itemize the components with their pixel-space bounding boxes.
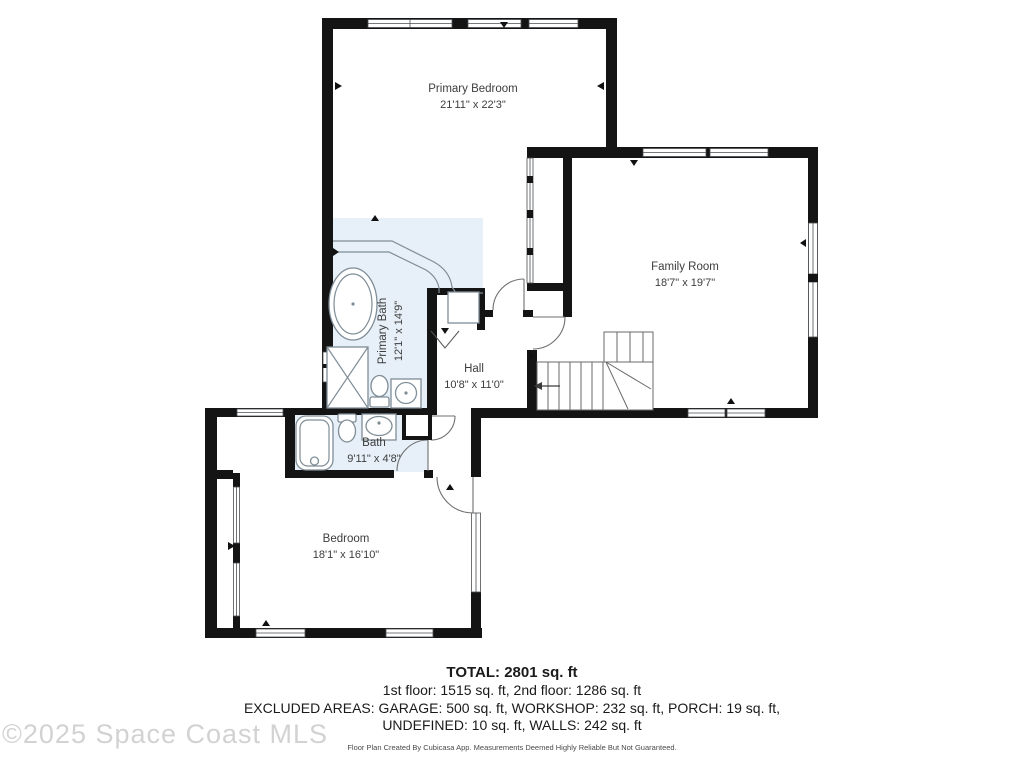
window-partition — [527, 158, 533, 283]
toilet-icon — [338, 414, 356, 442]
window — [472, 513, 481, 592]
window — [468, 20, 521, 28]
window — [643, 149, 706, 157]
door-hall-to-primary-suite — [493, 279, 524, 310]
window — [727, 409, 765, 417]
window — [234, 487, 240, 543]
toilet-icon — [370, 376, 389, 408]
room-dims-primary-bedroom: 21'11" x 22'3" — [440, 99, 506, 111]
ticks — [228, 22, 806, 626]
room-dims-hall: 10'8" x 11'0" — [444, 379, 504, 391]
room-label-bath: Bath — [362, 437, 386, 449]
sink-icon — [391, 379, 421, 408]
floor-areas-text: 1st floor: 1515 sq. ft, 2nd floor: 1286 … — [0, 682, 1024, 700]
room-label-hall: Hall — [464, 363, 484, 375]
floor-plan-page: Primary Bedroom 21'11" x 22'3" Family Ro… — [0, 0, 1024, 768]
excluded-areas-text-1: EXCLUDED AREAS: GARAGE: 500 sq. ft, WORK… — [0, 700, 1024, 718]
room-dims-primary-bath: 12'1" x 14'9" — [393, 301, 405, 361]
linen-closet — [404, 413, 430, 438]
room-label-primary-bedroom: Primary Bedroom — [428, 83, 517, 95]
water-heater-icon — [448, 292, 479, 323]
window — [809, 223, 818, 274]
window — [809, 282, 818, 337]
mls-watermark: ©2025 Space Coast MLS — [2, 719, 328, 750]
window — [234, 563, 240, 616]
room-label-primary-bath: Primary Bath — [377, 298, 389, 364]
room-dims-family-room: 18'7" x 19'7" — [655, 277, 715, 289]
door-bedroom — [437, 477, 473, 513]
room-dims-bath: 9'11" x 4'8" — [347, 453, 400, 465]
room-dims-bedroom: 18'1" x 16'10" — [313, 549, 380, 561]
window — [368, 20, 452, 28]
window — [386, 629, 433, 637]
room-label-family-room: Family Room — [651, 261, 719, 273]
total-area-text: TOTAL: 2801 sq. ft — [0, 663, 1024, 682]
window — [237, 409, 283, 416]
window — [710, 149, 768, 157]
shower-icon — [327, 347, 368, 408]
window — [256, 629, 305, 637]
bathtub-icon — [329, 268, 377, 340]
window — [688, 409, 725, 417]
staircase — [534, 332, 653, 410]
window — [529, 20, 578, 28]
door-hall-to-family-room — [533, 317, 565, 349]
bathtub-icon — [296, 416, 333, 470]
door-hall-closet — [431, 416, 455, 440]
room-label-bedroom: Bedroom — [323, 533, 370, 545]
walls — [205, 18, 818, 638]
floor-plan-svg: Primary Bedroom 21'11" x 22'3" Family Ro… — [0, 0, 1024, 768]
windows — [234, 20, 819, 638]
